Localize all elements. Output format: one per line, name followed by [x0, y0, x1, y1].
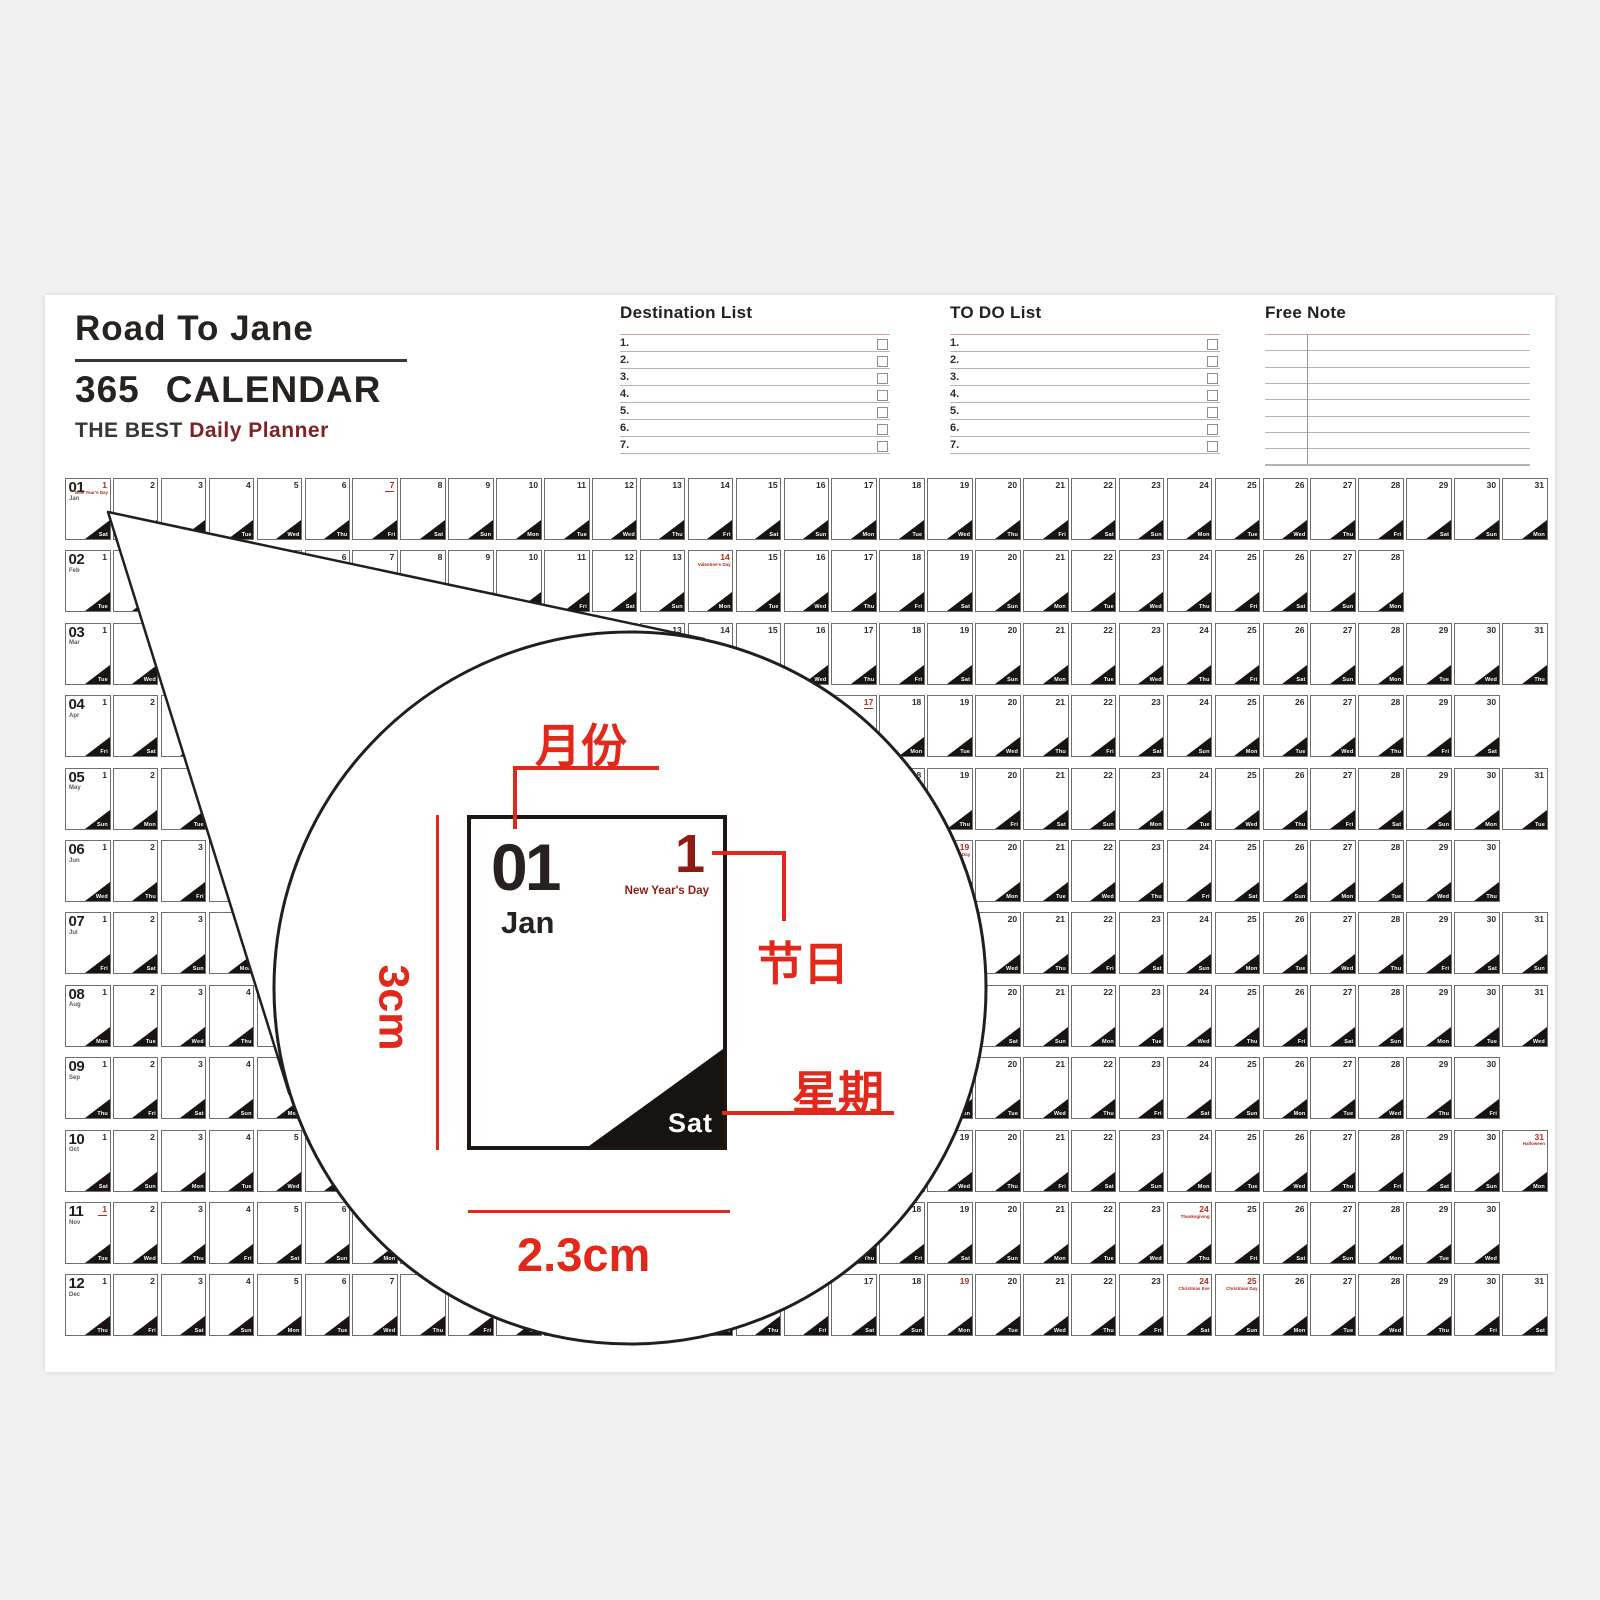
day-cell: 2Fri — [113, 1274, 159, 1336]
weekday-label: Wed — [1341, 966, 1353, 972]
weekday-label: Fri — [963, 1039, 971, 1045]
weekday-label: Sat — [1153, 749, 1162, 755]
weekday-label: Fri — [244, 1256, 252, 1262]
weekday-label: Wed — [814, 1256, 826, 1262]
day-cell: 15Sat — [736, 478, 782, 540]
weekday-label: Thu — [912, 1039, 923, 1045]
day-cell: 14Valentine's DayMon — [688, 550, 734, 612]
day-number: 18 — [912, 625, 921, 635]
day-cell: 6Thu — [305, 478, 351, 540]
day-cell: 9Sat — [448, 912, 494, 974]
day-cell: 8Fri — [400, 695, 446, 757]
day-cell: 6Tue — [305, 1057, 351, 1119]
weekday-label: Sun — [672, 1256, 683, 1262]
day-number: 26 — [1295, 987, 1304, 997]
day-cell: 21Thu — [1023, 695, 1069, 757]
day-cell: 15Sat — [736, 1130, 782, 1192]
day-cell: 11Tue — [544, 1130, 590, 1192]
day-number: 24 — [1199, 480, 1208, 490]
day-number: 16 — [816, 770, 825, 780]
day-number: 30 — [1487, 914, 1496, 924]
day-cell: 30Sat — [1454, 695, 1500, 757]
day-number: 14 — [720, 1059, 729, 1069]
product-image: Road To Jane 365CALENDAR THE BEST Daily … — [0, 0, 1600, 1600]
weekday-label: Tue — [433, 1256, 443, 1262]
day-cell: 8Tue — [400, 1202, 446, 1264]
day-number: 31 — [1535, 1132, 1544, 1142]
day-cell: 10Fri — [496, 840, 542, 902]
day-cell: 28Wed — [1358, 1057, 1404, 1119]
day-number: 28 — [1391, 480, 1400, 490]
day-cell: 21Tue — [1023, 840, 1069, 902]
day-number: 12 — [624, 914, 633, 924]
day-cell: 4Fri — [209, 550, 255, 612]
day-number: 3 — [198, 480, 203, 490]
day-number: 14 — [720, 770, 729, 780]
day-cell: 22Thu — [1071, 1057, 1117, 1119]
day-number: 25 — [1247, 842, 1256, 852]
holiday-label: Christmas Day — [1226, 1286, 1258, 1291]
day-number: 10 — [529, 1276, 538, 1286]
day-cell: 27Sun — [1310, 1202, 1356, 1264]
day-number: 11 — [577, 1204, 586, 1214]
day-cell: 25Fri — [1215, 1202, 1261, 1264]
day-number: 13 — [672, 697, 681, 707]
weekday-label: Fri — [1346, 822, 1354, 828]
day-cell: 21Fri — [1023, 478, 1069, 540]
day-cell: 23Sun — [1119, 478, 1165, 540]
day-number: 21 — [1056, 770, 1065, 780]
day-number: 18 — [912, 1204, 921, 1214]
weekday-label: Thu — [720, 966, 731, 972]
day-cell: 19Sat — [927, 623, 973, 685]
day-cell: 22Tue — [1071, 623, 1117, 685]
day-number: 16 — [816, 1059, 825, 1069]
day-number: 28 — [1391, 1204, 1400, 1214]
weekday-label: Thu — [1343, 1184, 1354, 1190]
weekday-label: Mon — [96, 1039, 108, 1045]
day-cell: 26Mon — [1263, 1057, 1309, 1119]
day-cell: 22Fri — [1071, 912, 1117, 974]
day-cell: 10Sat — [496, 1057, 542, 1119]
day-cell: 18Sun — [879, 1057, 925, 1119]
weekday-label: Tue — [481, 1039, 491, 1045]
day-number: 26 — [1295, 552, 1304, 562]
weekday-label: Mon — [719, 677, 731, 683]
day-cell: 12Sun — [592, 840, 638, 902]
day-number: 1 — [102, 987, 107, 997]
day-cell: 14Wed — [688, 1057, 734, 1119]
day-cell: 19Tue — [927, 695, 973, 757]
day-cell: 11Fri — [544, 1202, 590, 1264]
day-number: 5 — [294, 1059, 299, 1069]
weekday-label: Mon — [240, 966, 252, 972]
weekday-label: Wed — [719, 1328, 731, 1334]
weekday-label: Mon — [575, 749, 587, 755]
weekday-label: Wed — [144, 1256, 156, 1262]
day-number: 21 — [1056, 480, 1065, 490]
day-cell: 12Mon — [592, 1274, 638, 1336]
day-cell: 13Sun — [640, 550, 686, 612]
day-number: 23 — [1151, 1059, 1160, 1069]
day-cell: 17Sat — [831, 1057, 877, 1119]
day-cell: 2Wed — [113, 623, 159, 685]
day-number: 19 — [960, 1132, 969, 1142]
day-cell: 2Sat — [113, 912, 159, 974]
day-number: 31 — [1535, 987, 1544, 997]
day-number: 6 — [342, 1276, 347, 1286]
weekday-label: Mon — [1054, 677, 1066, 683]
weekday-label: Mon — [192, 1184, 204, 1190]
day-number: 26 — [1295, 1276, 1304, 1286]
day-number: 7 — [390, 625, 395, 635]
weekday-label: Tue — [194, 822, 204, 828]
day-number: 5 — [294, 1204, 299, 1214]
day-cell: 5Sun — [257, 840, 303, 902]
day-number: 12 — [624, 1204, 633, 1214]
day-number: 23 — [1151, 1276, 1160, 1286]
day-cell: 2Sun — [113, 1130, 159, 1192]
day-number: 2 — [150, 1059, 155, 1069]
weekday-label: Mon — [383, 677, 395, 683]
weekday-label: Wed — [240, 822, 252, 828]
weekday-label: Mon — [719, 1256, 731, 1262]
day-number: 20 — [1008, 770, 1017, 780]
day-number: 4 — [246, 1059, 251, 1069]
day-cell: 27Mon — [1310, 840, 1356, 902]
weekday-label: Fri — [148, 1111, 156, 1117]
day-cell: 21Mon — [1023, 550, 1069, 612]
day-number: 3 — [198, 1204, 203, 1214]
day-cell: 9Sun — [448, 478, 494, 540]
weekday-label: Sun — [1103, 822, 1114, 828]
weekday-label: Sat — [147, 749, 156, 755]
day-number: 13 — [672, 842, 681, 852]
weekday-label: Wed — [1437, 894, 1449, 900]
day-number: 11 — [577, 987, 586, 997]
weekday-label: Tue — [242, 1184, 252, 1190]
day-cell: 10Sat — [496, 1274, 542, 1336]
weekday-label: Sat — [817, 966, 826, 972]
day-cell: 3Thu — [161, 550, 207, 612]
weekday-label: Mon — [815, 822, 827, 828]
day-cell: 12Mon — [592, 1057, 638, 1119]
day-number: 15 — [768, 770, 777, 780]
weekday-label: Tue — [1056, 894, 1066, 900]
day-cell: 8Mon — [400, 985, 446, 1047]
day-cell: 13Fri — [640, 768, 686, 830]
day-number: 24 — [1199, 842, 1208, 852]
day-cell: 12Wed — [592, 1130, 638, 1192]
weekday-label: Thu — [768, 1328, 779, 1334]
weekday-label: Sat — [386, 822, 395, 828]
day-cell: 27Sun — [1310, 550, 1356, 612]
weekday-label: Mon — [1294, 1111, 1306, 1117]
day-number: 11 — [577, 914, 586, 924]
day-number: 9 — [485, 625, 490, 635]
day-number: 25 — [1247, 987, 1256, 997]
day-number: 27 — [1343, 697, 1352, 707]
weekday-label: Mon — [288, 1111, 300, 1117]
weekday-label: Fri — [723, 1184, 731, 1190]
weekday-label: Thu — [864, 677, 875, 683]
weekday-label: Tue — [1391, 894, 1401, 900]
weekday-label: Fri — [579, 604, 587, 610]
day-cell: 6Sun — [305, 1202, 351, 1264]
day-cell: 16Thu — [784, 840, 830, 902]
day-cell: 16Sun — [784, 1130, 830, 1192]
weekday-label: Wed — [1150, 1256, 1162, 1262]
day-number: 4 — [246, 1276, 251, 1286]
day-number: 18 — [912, 480, 921, 490]
day-number: 12 — [624, 697, 633, 707]
day-number: 3 — [198, 1132, 203, 1142]
weekday-label: Sun — [1007, 604, 1018, 610]
day-number: 5 — [294, 625, 299, 635]
day-cell: 1Tue02Feb — [65, 550, 111, 612]
day-cell: 18Sat — [879, 840, 925, 902]
day-number: 2 — [150, 987, 155, 997]
weekday-label: Sun — [289, 894, 300, 900]
weekday-label: Mon — [288, 1328, 300, 1334]
day-cell: 21Sat — [1023, 768, 1069, 830]
weekday-label: Fri — [1202, 894, 1210, 900]
day-number: 17 — [864, 1059, 873, 1069]
day-number: 4 — [246, 842, 251, 852]
day-number: 13 — [672, 987, 681, 997]
day-cell: 23Wed — [1119, 623, 1165, 685]
weekday-label: Mon — [192, 532, 204, 538]
day-cell: 8Wed — [400, 840, 446, 902]
day-cell: 3Tue — [161, 768, 207, 830]
weekday-label: Wed — [814, 677, 826, 683]
weekday-label: Mon — [383, 604, 395, 610]
day-number: 22 — [1103, 914, 1112, 924]
day-cell: 8Thu — [400, 1057, 446, 1119]
weekday-label: Sat — [865, 1111, 874, 1117]
day-cell: 21Mon — [1023, 1202, 1069, 1264]
day-cell: 23Thu — [1119, 840, 1165, 902]
day-cell: 15Sun — [736, 768, 782, 830]
weekday-label: Mon — [1054, 604, 1066, 610]
day-number: 13 — [672, 1059, 681, 1069]
day-cell: 14Thu — [688, 695, 734, 757]
day-number: 13 — [672, 1204, 681, 1214]
weekday-label: Sun — [672, 604, 683, 610]
weekday-label: Thu — [1439, 1328, 1450, 1334]
day-number: 28 — [1391, 842, 1400, 852]
weekday-label: Wed — [1150, 677, 1162, 683]
weekday-label: Sun — [241, 1328, 252, 1334]
day-number: 31 — [1535, 770, 1544, 780]
day-cell: 30Fri — [1454, 1057, 1500, 1119]
day-cell: 19Thu — [927, 768, 973, 830]
weekday-label: Sun — [1342, 677, 1353, 683]
day-number: 10 — [529, 914, 538, 924]
weekday-label: Thu — [193, 604, 204, 610]
day-number: 27 — [1343, 552, 1352, 562]
weekday-label: Sat — [1057, 822, 1066, 828]
day-number: 16 — [816, 625, 825, 635]
month-number: 04 — [69, 696, 85, 713]
day-cell: 4Tue — [209, 1130, 255, 1192]
day-number: 21 — [1056, 1204, 1065, 1214]
weekday-label: Wed — [144, 604, 156, 610]
weekday-label: Wed — [1293, 1184, 1305, 1190]
day-cell: 17Wed — [831, 985, 877, 1047]
day-cell: 2Tue — [113, 985, 159, 1047]
day-number: 29 — [1439, 625, 1448, 635]
day-number: 15 — [768, 1132, 777, 1142]
day-number: 22 — [1103, 842, 1112, 852]
day-cell: 25Tue — [1215, 478, 1261, 540]
weekday-label: Sat — [290, 1256, 299, 1262]
weekday-label: Wed — [910, 822, 922, 828]
day-number: 9 — [485, 1132, 490, 1142]
day-number: 19 — [960, 842, 969, 852]
weekday-label: Sun — [432, 822, 443, 828]
day-cell: 19Mon — [927, 1057, 973, 1119]
day-cell: 6Thu — [305, 1130, 351, 1192]
day-cell: 29Mon — [1406, 985, 1452, 1047]
day-cell: 1Tue03Mar — [65, 623, 111, 685]
weekday-label: Fri — [388, 532, 396, 538]
day-cell: 7Fri — [352, 1130, 398, 1192]
day-number: 13 — [672, 914, 681, 924]
day-number: 12 — [624, 1132, 633, 1142]
weekday-label: Sun — [1199, 966, 1210, 972]
weekday-label: Wed — [479, 1256, 491, 1262]
day-number: 18 — [912, 552, 921, 562]
weekday-label: Fri — [244, 677, 252, 683]
day-cell: 10Sun — [496, 695, 542, 757]
day-number: 18 — [912, 697, 921, 707]
weekday-label: Sun — [1151, 1184, 1162, 1190]
day-cell: 7Mon — [352, 1202, 398, 1264]
weekday-label: Sat — [817, 749, 826, 755]
weekday-label: Tue — [1535, 822, 1545, 828]
day-number: 4 — [246, 697, 251, 707]
weekday-label: Wed — [1102, 894, 1114, 900]
weekday-label: Tue — [577, 1184, 587, 1190]
day-number: 1 — [102, 842, 107, 852]
day-cell: 5Fri — [257, 985, 303, 1047]
day-cell: 24ThanksgivingThu — [1167, 1202, 1213, 1264]
weekday-label: Wed — [671, 966, 683, 972]
day-number: 17 — [864, 552, 873, 562]
weekday-label: Wed — [1389, 1111, 1401, 1117]
day-cell: 5Sat — [257, 550, 303, 612]
day-number: 12 — [624, 842, 633, 852]
day-number: 7 — [390, 552, 395, 562]
day-cell: 23Fri — [1119, 1274, 1165, 1336]
weekday-label: Fri — [915, 1256, 923, 1262]
day-cell: 3Fri — [161, 840, 207, 902]
day-cell: 9Thu — [448, 840, 494, 902]
weekday-label: Thu — [1151, 894, 1162, 900]
weekday-label: Mon — [1389, 677, 1401, 683]
day-number: 17 — [864, 1204, 873, 1214]
day-cell: 25Mon — [1215, 695, 1261, 757]
weekday-label: Wed — [671, 749, 683, 755]
weekday-label: Sat — [578, 894, 587, 900]
day-cell: 6Sat — [305, 985, 351, 1047]
day-number: 29 — [1439, 697, 1448, 707]
day-number: 23 — [1151, 697, 1160, 707]
day-cell: 29Wed — [1406, 840, 1452, 902]
day-number: 11 — [577, 625, 586, 635]
day-cell: 18Tue — [879, 1130, 925, 1192]
day-number: 2 — [150, 625, 155, 635]
day-cell: 3Wed — [161, 985, 207, 1047]
day-number: 26 — [1295, 770, 1304, 780]
weekday-label: Mon — [671, 894, 683, 900]
weekday-label: Thu — [1199, 604, 1210, 610]
day-cell: 15Thu — [736, 1057, 782, 1119]
weekday-label: Fri — [292, 1039, 300, 1045]
day-number: 20 — [1008, 1132, 1017, 1142]
day-cell: 18Tue — [879, 478, 925, 540]
day-cell: 3Mon — [161, 478, 207, 540]
day-number: 28 — [1391, 625, 1400, 635]
day-cell: 8Fri — [400, 912, 446, 974]
day-cell: 25Christmas DaySun — [1215, 1274, 1261, 1336]
day-number: 22 — [1103, 552, 1112, 562]
day-number: 18 — [912, 1276, 921, 1286]
weekday-label: Tue — [673, 1111, 683, 1117]
day-cell: 6Wed — [305, 695, 351, 757]
weekday-label: Thu — [768, 1111, 779, 1117]
weekday-label: Sun — [576, 1328, 587, 1334]
day-number: 9 — [485, 1276, 490, 1286]
day-number: 5 — [294, 914, 299, 924]
day-cell: 31HalloweenMon — [1502, 1130, 1548, 1192]
weekday-label: Mon — [623, 1328, 635, 1334]
day-cell: 26Tue — [1263, 695, 1309, 757]
weekday-label: Thu — [1199, 1256, 1210, 1262]
day-number: 20 — [1008, 842, 1017, 852]
day-cell: 5Tue — [257, 695, 303, 757]
day-cell: 26Sat — [1263, 623, 1309, 685]
weekday-label: Wed — [144, 677, 156, 683]
day-cell: 24Tue — [1167, 768, 1213, 830]
day-number: 23 — [1151, 480, 1160, 490]
day-number: 18 — [912, 1132, 921, 1142]
day-cell: 26Sat — [1263, 550, 1309, 612]
weekday-label: Sat — [1201, 1111, 1210, 1117]
day-number: 15 — [768, 914, 777, 924]
day-number: 12 — [624, 552, 633, 562]
day-number: 29 — [1439, 1059, 1448, 1069]
day-cell: 16Fri — [784, 1057, 830, 1119]
day-number: 15 — [768, 987, 777, 997]
day-cell: 22Fri — [1071, 695, 1117, 757]
month-abbr: Mar — [69, 640, 80, 646]
month-abbr: Sep — [69, 1075, 80, 1081]
day-cell: 27Thu — [1310, 1130, 1356, 1192]
day-number: 12 — [624, 770, 633, 780]
month-number: 02 — [69, 551, 85, 568]
day-cell: 23Sat — [1119, 695, 1165, 757]
day-cell: 25Wed — [1215, 768, 1261, 830]
day-number: 1 — [102, 480, 107, 490]
day-number: 30 — [1487, 1059, 1496, 1069]
day-number: 3 — [198, 552, 203, 562]
weekday-label: Fri — [436, 749, 444, 755]
day-number: 17 — [864, 914, 873, 924]
weekday-label: Sat — [1344, 1039, 1353, 1045]
weekday-label: Fri — [1106, 966, 1114, 972]
